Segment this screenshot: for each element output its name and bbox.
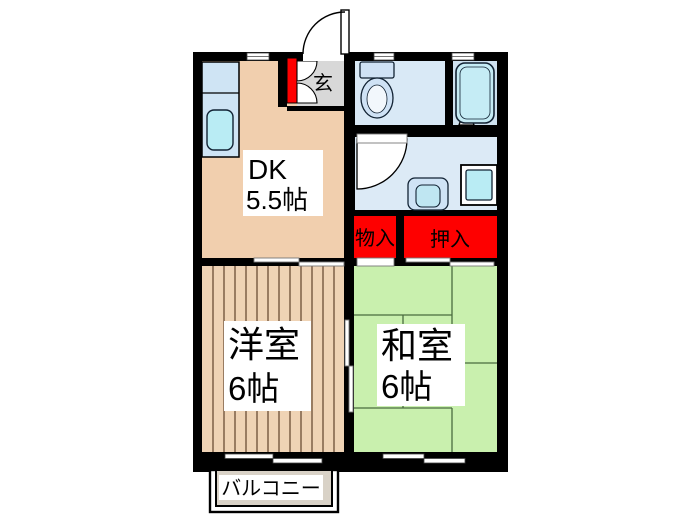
toilet-door-band [357, 134, 407, 143]
kitchen-sink-icon [207, 110, 233, 150]
dk-western-sliding-door [299, 262, 344, 266]
western-japanese-sliding-door [349, 366, 353, 412]
bathtub-icon [456, 63, 494, 123]
kitchen-counter-icon [202, 62, 239, 157]
toilet-icon [360, 62, 394, 118]
closet-sliding-door [406, 258, 450, 262]
closet-label: 押入 [430, 228, 470, 251]
western-room-name: 洋室 [228, 324, 300, 365]
entrance-door-leaf-icon [341, 10, 349, 54]
balcony-label: バルコニー [221, 478, 321, 500]
japanese-room-size: 6帖 [381, 368, 432, 405]
floor-plan: DK 5.5帖 洋室 6帖 和室 6帖 玄 物入 押入 バルコニー [0, 0, 700, 525]
dk-western-sliding-door [254, 258, 299, 262]
western-window [273, 459, 322, 464]
entrance-label: 玄 [313, 72, 333, 95]
dk-room-name: DK [248, 154, 287, 185]
japanese-window [424, 459, 465, 464]
japanese-room-name: 和室 [381, 325, 453, 366]
dk-room-size: 5.5帖 [246, 185, 308, 215]
japanese-window [383, 454, 424, 459]
shoe-cabinet [287, 58, 297, 103]
washbasin-icon [408, 178, 448, 210]
entrance-bottom-wall [287, 106, 344, 111]
entrance-opening [303, 52, 344, 61]
washing-machine-icon [461, 165, 497, 205]
western-japanese-sliding-door [345, 320, 349, 366]
closet-sliding-door [450, 262, 494, 266]
storage-label: 物入 [355, 227, 395, 250]
western-window [225, 454, 273, 459]
western-room-size: 6帖 [228, 370, 279, 407]
entrance-wall-stub [278, 52, 287, 107]
storage-sliding-door [357, 258, 394, 266]
